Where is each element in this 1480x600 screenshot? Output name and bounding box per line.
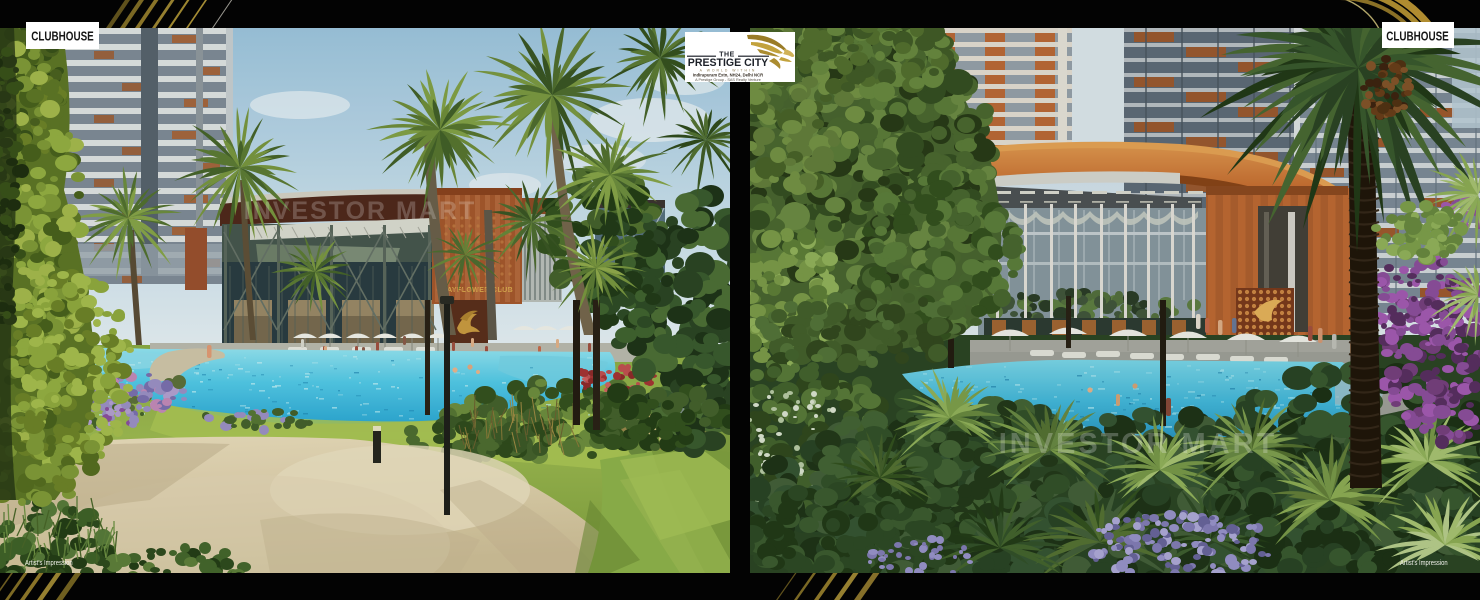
svg-text:Artist’s Impression: Artist’s Impression (25, 559, 73, 567)
